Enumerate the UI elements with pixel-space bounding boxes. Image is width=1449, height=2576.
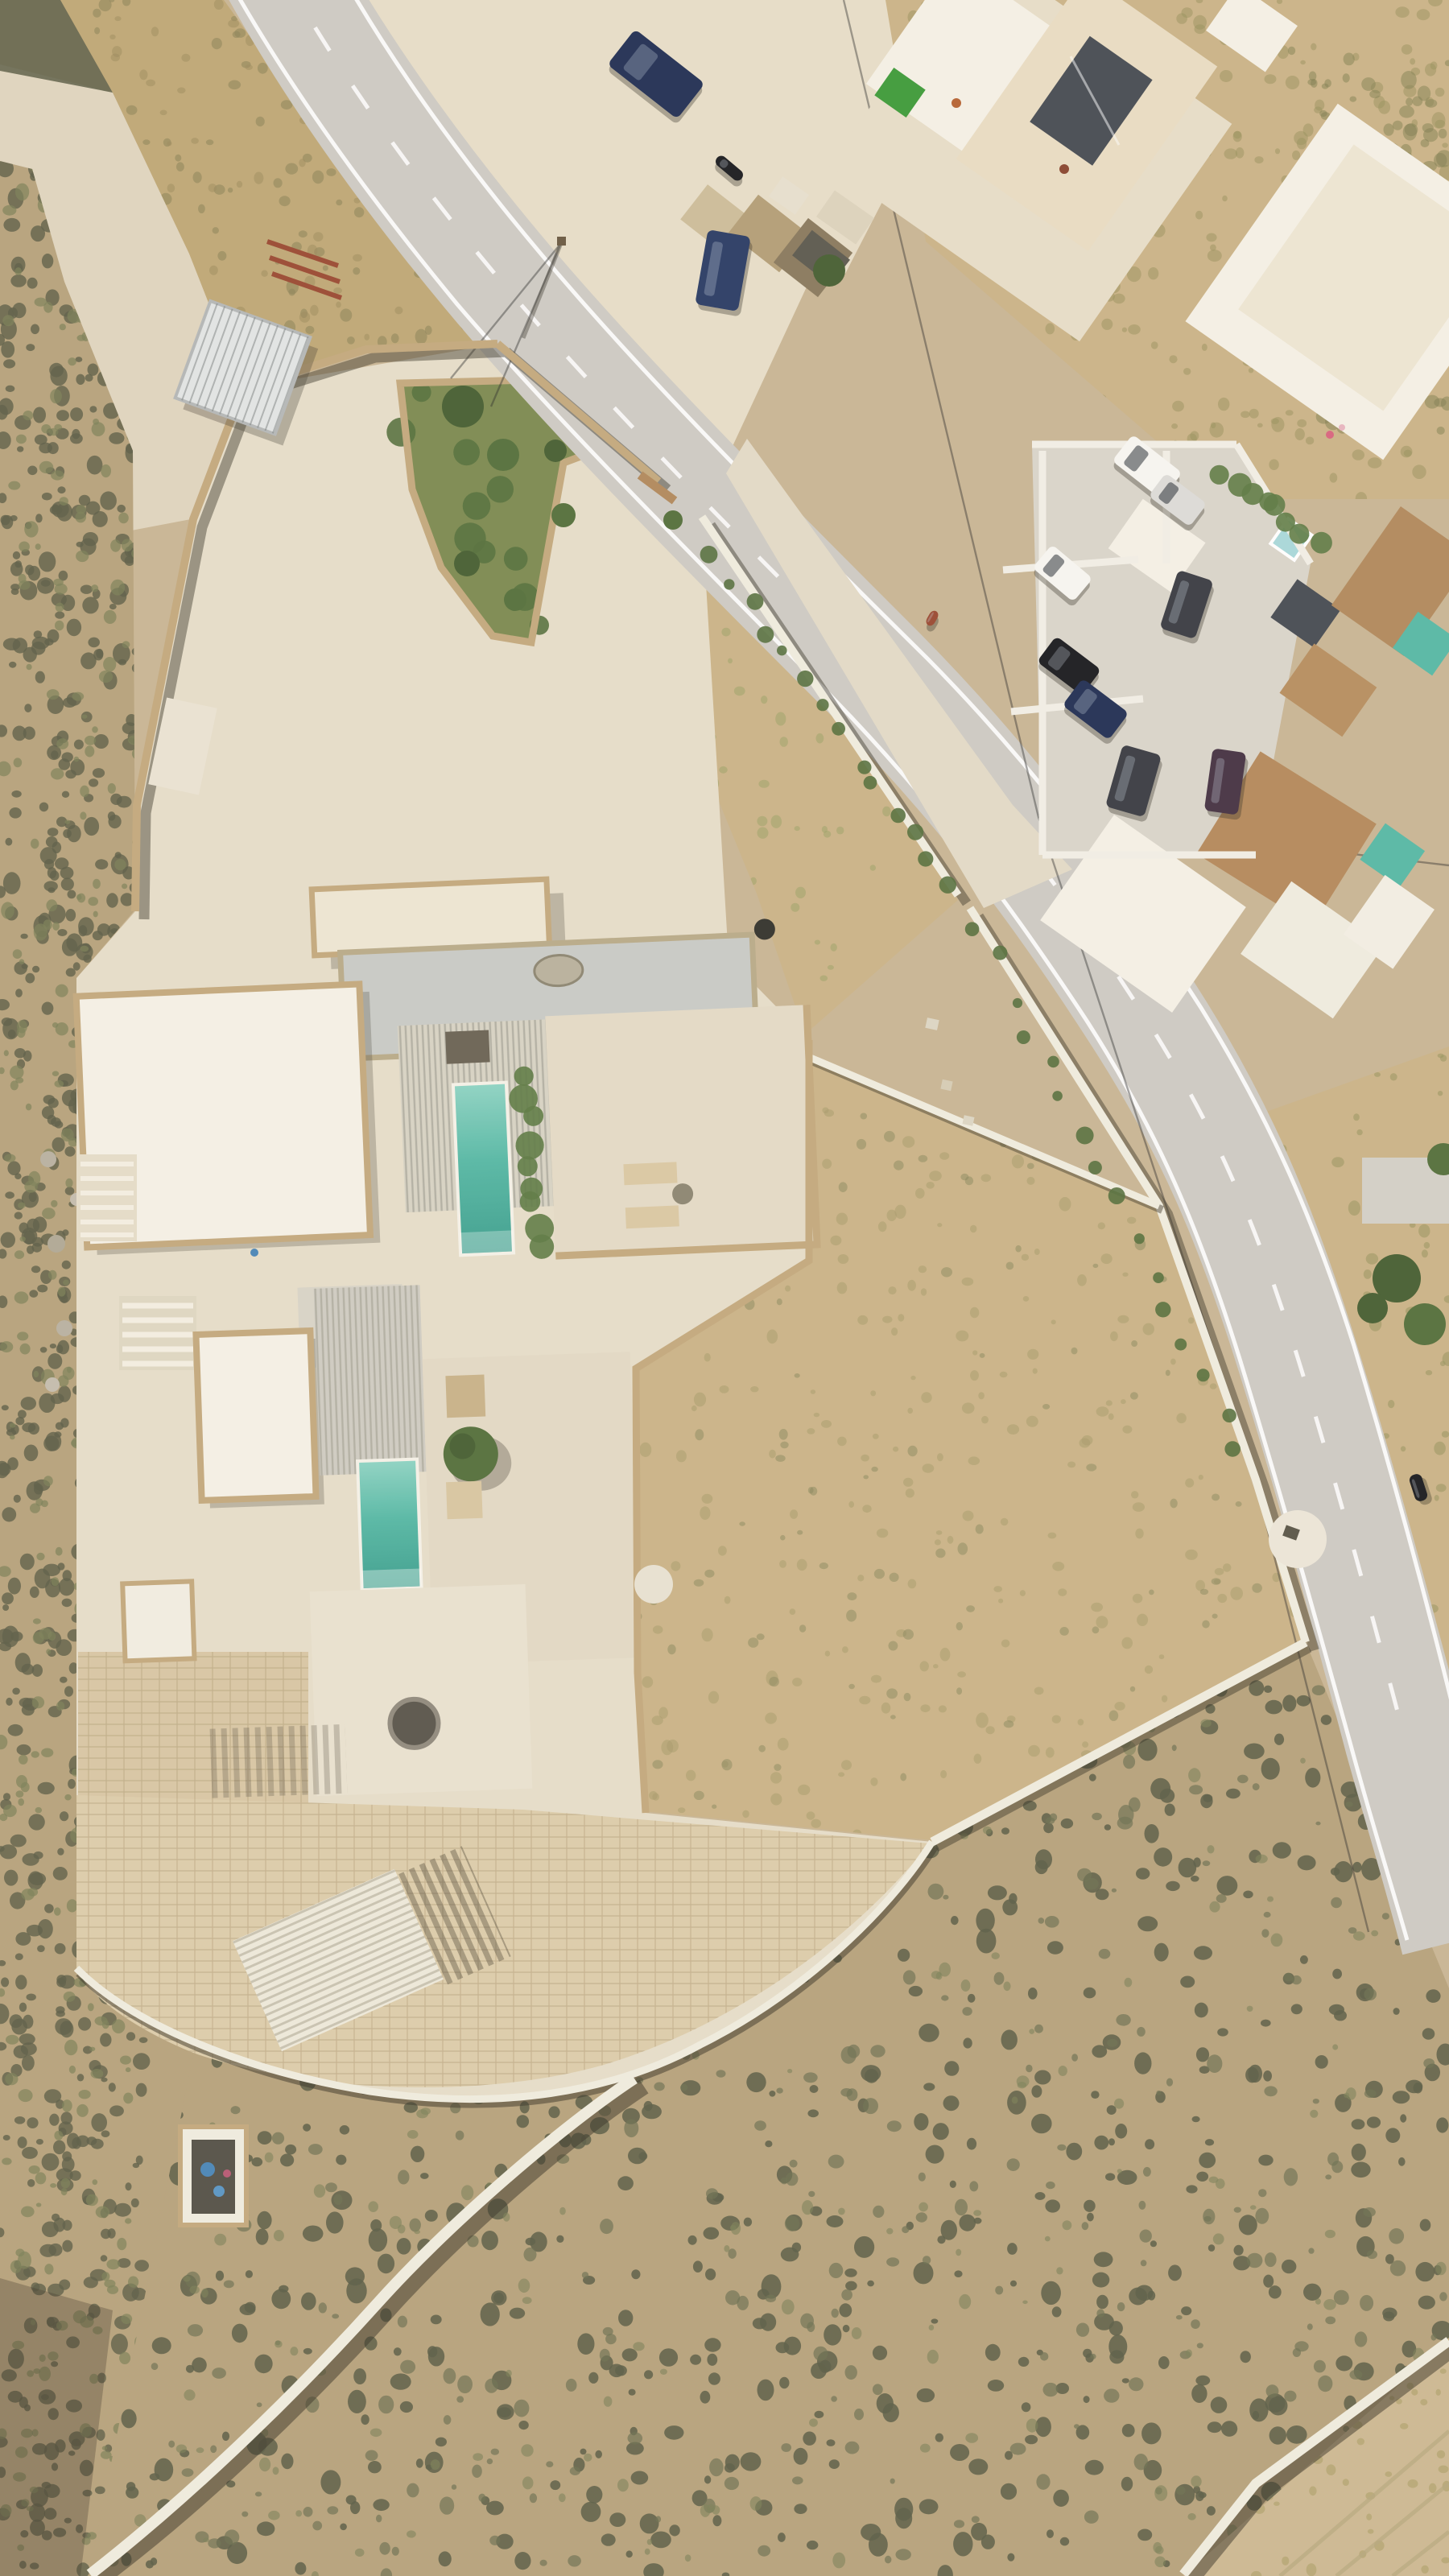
aerial-photo: [0, 0, 1449, 2576]
aerial-photo-stage: [0, 0, 1449, 2576]
photo-light-tint: [0, 0, 1449, 2576]
